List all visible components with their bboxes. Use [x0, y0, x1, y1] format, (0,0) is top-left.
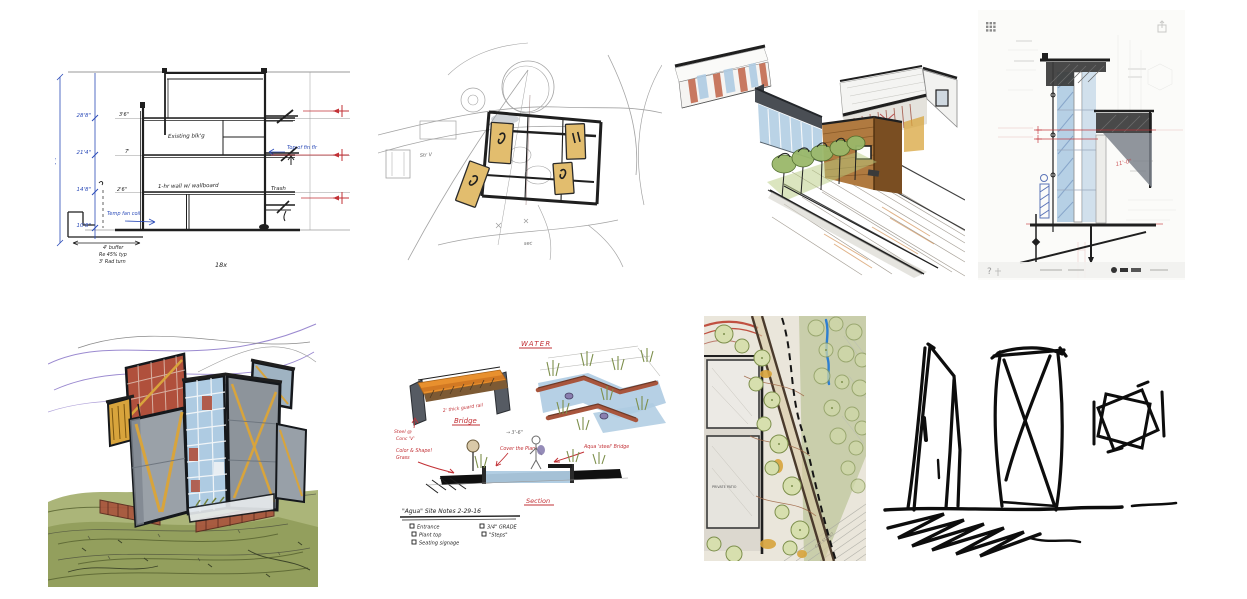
water-label: WATER — [521, 340, 551, 348]
ink-massing-svg — [880, 332, 1180, 567]
sketch-wall-section-detail[interactable]: 11'-0" ? — [978, 10, 1185, 280]
bridge-note: 2' thick guard rail — [442, 402, 484, 414]
sketch-site-plan[interactable]: PRIVATE PATIO — [704, 316, 866, 561]
bridge-label: Bridge — [454, 417, 477, 425]
checklist-item: Seating signage — [419, 541, 459, 547]
sketch-landscape-notes[interactable]: WATER 2' thick guard rail Bridge Steel @… — [388, 328, 668, 563]
mid-dim-note: → 3'-6" — [506, 430, 523, 436]
bridge-detail: 2' thick guard rail Bridge Steel @ Conc … — [394, 367, 510, 442]
scale-note: 18x — [215, 261, 227, 269]
water-label-group: WATER — [519, 340, 552, 348]
tower-cluster — [106, 354, 306, 526]
site-plan-svg: PRIVATE PATIO — [704, 316, 866, 561]
left-note: Steel @ — [394, 429, 412, 435]
sketch-gallery: 74' 28'8" 21'4" 14'8" 10'8" Top of fin f… — [0, 0, 1247, 599]
left-note: Conc 'V' — [396, 436, 415, 442]
help-icon[interactable]: ? — [987, 267, 992, 277]
footer-note: 3' Rad turn — [99, 259, 126, 265]
handwritten-notes: 3'6" 7' 2'6" Existing blk'g 1-hr wall w/… — [73, 112, 286, 269]
center-tower — [992, 348, 1066, 510]
section-label: Section — [526, 497, 550, 505]
marker-strokes — [885, 344, 1176, 556]
wall-section-svg: 11'-0" ? — [978, 10, 1185, 280]
checklist-item: Plant top — [419, 533, 441, 539]
wall-dim: 3'6" — [119, 112, 129, 118]
plan-glyph — [1094, 382, 1164, 452]
wall-dim: 2'6" — [117, 187, 127, 193]
dim-label: 28'8" — [76, 113, 91, 119]
left-tower — [908, 344, 960, 510]
blue-note-right: Top of fin flr — [287, 145, 318, 151]
sketch-ink-massing[interactable] — [880, 332, 1180, 567]
section-linework — [68, 68, 300, 237]
landscape-notes-svg: WATER 2' thick guard rail Bridge Steel @… — [388, 328, 668, 563]
plan-note-bottom: sec — [524, 241, 533, 247]
building-section-svg: 74' 28'8" 21'4" 14'8" 10'8" Top of fin f… — [55, 15, 350, 275]
right-volume — [923, 68, 957, 127]
sketch-building-section[interactable]: 74' 28'8" 21'4" 14'8" 10'8" Top of fin f… — [55, 15, 350, 275]
plan-note-left: Str V — [420, 152, 433, 159]
checklist-item: "Steps" — [489, 533, 508, 539]
footer-note: 4' buffer — [103, 245, 124, 251]
floor-note: Existing blk'g — [168, 133, 205, 140]
ground-strokes — [885, 503, 1176, 556]
water-feature-plan — [538, 346, 666, 433]
sketch-concept-plan[interactable]: Str V sec — [378, 35, 662, 268]
site-notes-block: "Agua" Site Notes 2-29-16 Entrance Plant… — [400, 508, 520, 547]
title-block-strip: ? — [978, 262, 1185, 278]
dim-total-label: 74' — [55, 155, 58, 165]
dim-label: 14'8" — [76, 187, 91, 193]
red-note: Grass — [396, 455, 410, 461]
wall-note: 1-hr wall w/ wallboard — [158, 183, 219, 190]
wall-dim: 7' — [125, 149, 130, 155]
dim-label: 21'4" — [76, 150, 91, 156]
red-note: Aqua 'steel' Bridge — [583, 444, 629, 450]
dim-label: 10'8" — [76, 223, 91, 229]
red-note: Color & Shape! — [396, 448, 432, 454]
watercolor-massing-svg — [48, 312, 318, 587]
section-label-group: Section — [524, 497, 554, 505]
trash-note: Trash — [271, 186, 286, 192]
checklist-item: Entrance — [417, 525, 439, 531]
sketch-watercolor-massing[interactable] — [48, 312, 318, 587]
concept-plan-svg: Str V sec — [378, 35, 662, 268]
private-patio-label: PRIVATE PATIO — [712, 485, 737, 489]
tan-building-bars — [455, 122, 585, 207]
blue-note-left: Temp fan coil — [107, 211, 141, 217]
aerial-perspective-svg — [672, 22, 965, 278]
checklist-item: 3/4" GRADE — [487, 525, 518, 531]
pencil-guides — [68, 72, 350, 230]
sketch-aerial-perspective[interactable] — [672, 22, 965, 278]
notes-title: "Agua" Site Notes 2-29-16 — [402, 508, 481, 515]
footer-note: Re 45% typ — [99, 252, 127, 258]
grid-icon[interactable] — [986, 22, 996, 32]
